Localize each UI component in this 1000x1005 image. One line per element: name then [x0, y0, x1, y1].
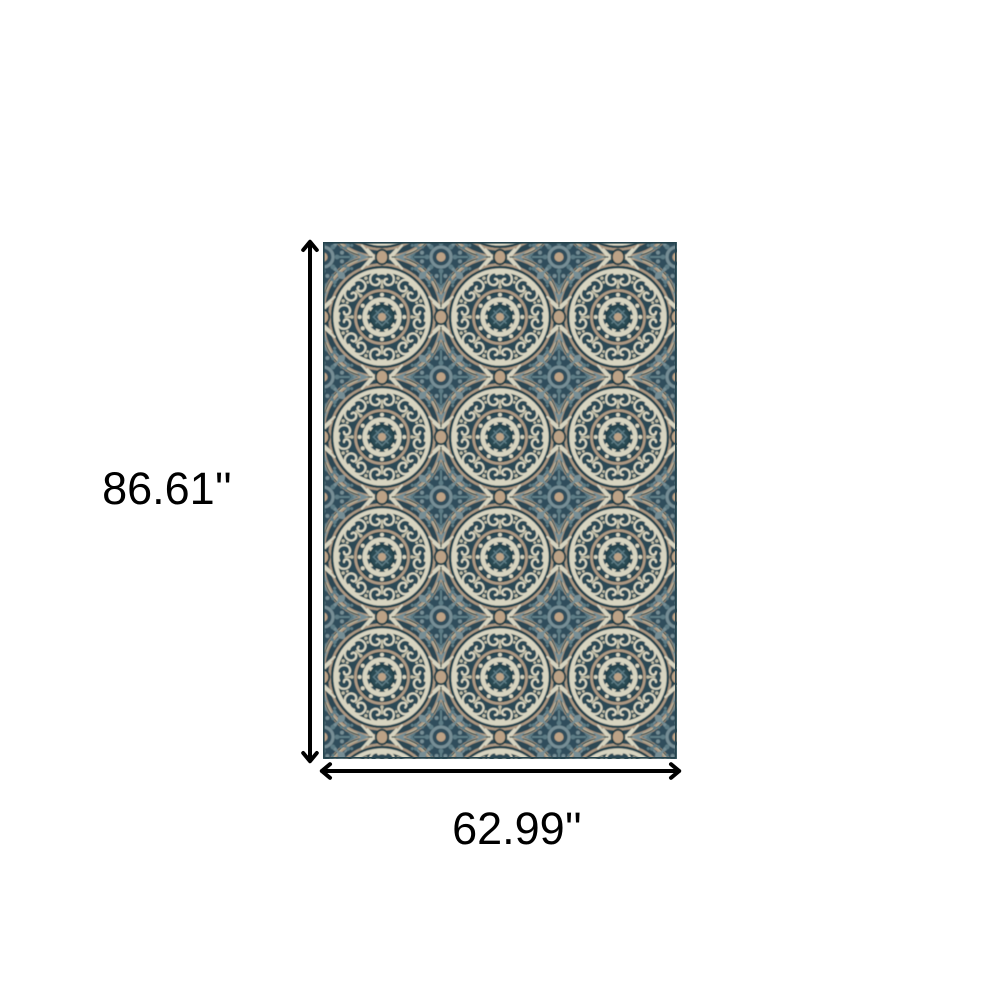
- svg-text:62.99'': 62.99'': [452, 803, 582, 854]
- svg-text:86.61'': 86.61'': [102, 463, 232, 514]
